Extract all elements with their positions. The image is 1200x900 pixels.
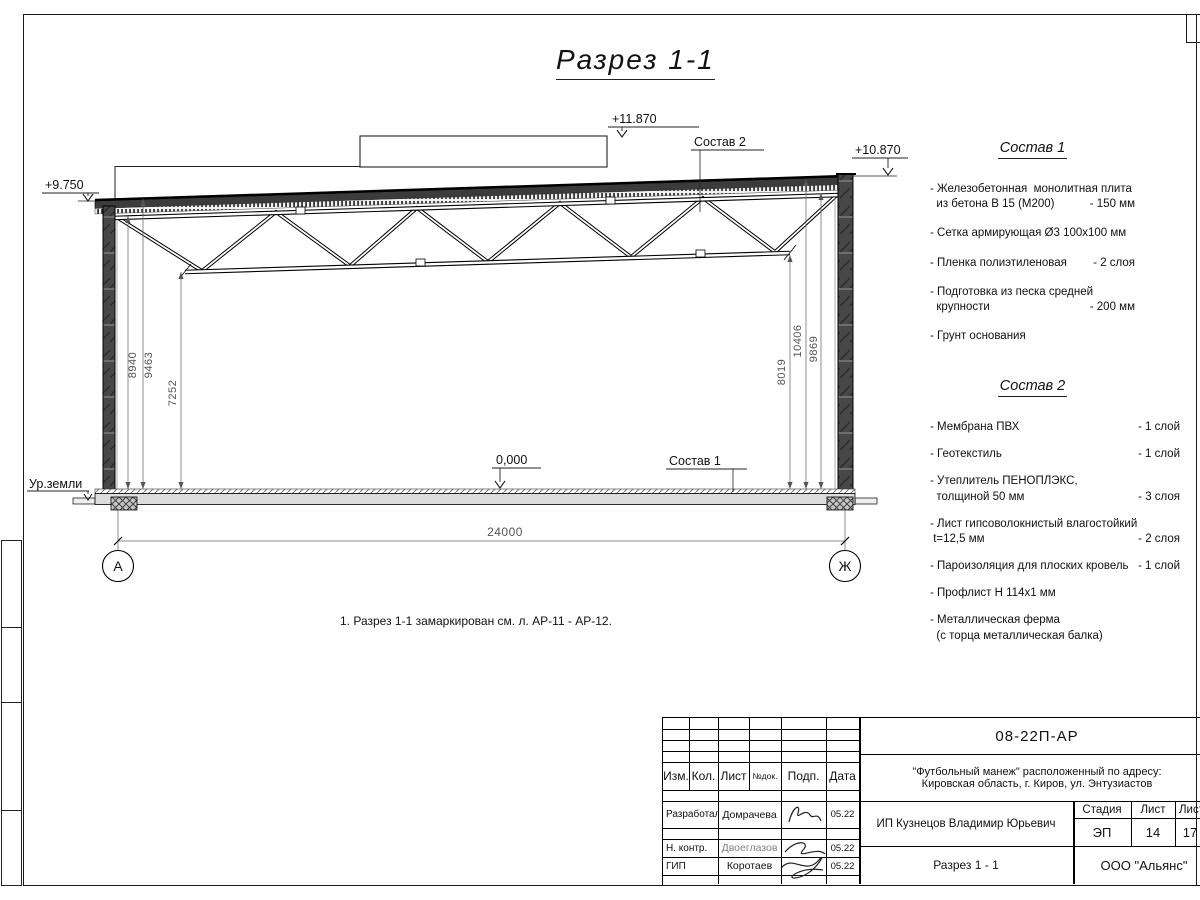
- tb-col-podp: Подп.: [781, 762, 826, 790]
- list-item: - Лист гипсоволокнистый влагостойкий t=1…: [930, 517, 1180, 547]
- tb-name-ncontrol: Двоеглазов: [718, 839, 781, 857]
- list-item: - Грунт основания: [930, 329, 1135, 344]
- binding-box: [1, 540, 22, 628]
- tb-sheet-label: Лист: [1131, 801, 1175, 818]
- corner-stamp-box: [1186, 14, 1200, 43]
- dim-9869: 9869: [808, 336, 820, 362]
- list-item: - Пленка полиэтиленовая - 2 слоя: [930, 256, 1135, 271]
- tb-client: ИП Кузнецов Владимир Юрьевич: [859, 801, 1073, 846]
- svg-text:Состав 2: Состав 2: [694, 135, 746, 149]
- list-item: - Геотекстиль - 1 слой: [930, 447, 1180, 462]
- tb-date-developer: 05.22: [826, 801, 859, 828]
- elevation-11870: +11.870: [608, 112, 699, 137]
- svg-text:Ур.земли: Ур.земли: [29, 477, 82, 491]
- tb-sheets-value: 17: [1175, 818, 1200, 846]
- elevation-10870: +10.870: [852, 143, 908, 176]
- tb-role-gip: ГИП: [663, 857, 718, 875]
- tb-col-ndok: №док.: [749, 762, 781, 790]
- tb-name-developer: Домрачева: [718, 801, 781, 828]
- drawing-note: 1. Разрез 1-1 замаркирован см. л. АР-11 …: [340, 614, 612, 628]
- sostav2-items: - Мембрана ПВХ - 1 слой - Геотекстиль - …: [930, 420, 1180, 644]
- leader-sostav1: Состав 1: [666, 454, 747, 492]
- tb-sheet-value: 14: [1131, 818, 1175, 846]
- walls: [103, 174, 856, 497]
- drawing-sheet: Разрез 1-1 1. Разрез 1-1 замаркирован см…: [0, 0, 1200, 900]
- dim-10406: 10406: [792, 324, 804, 357]
- tb-stage-label: Стадия: [1073, 801, 1131, 818]
- sostav1-panel: Состав 1 - Железобетонная монолитная пли…: [930, 140, 1135, 344]
- dim-8019: 8019: [776, 359, 788, 385]
- binding-box: [1, 702, 22, 811]
- sostav2-heading: Состав 2: [930, 378, 1135, 394]
- list-item: - Сетка армирующая Ø3 100x100 мм: [930, 226, 1135, 241]
- dim-9463: 9463: [143, 352, 155, 378]
- svg-text:+11.870: +11.870: [612, 112, 657, 126]
- tb-company: ООО "Альянс": [1073, 846, 1200, 884]
- list-item: - Профлист Н 114x1 мм: [930, 586, 1180, 601]
- elevation-9750: +9.750: [42, 178, 99, 201]
- binding-box: [1, 627, 22, 703]
- tb-stage-value: ЭП: [1073, 818, 1131, 846]
- tb-project-line2: Кировская область, г. Киров, ул. Энтузиа…: [859, 778, 1200, 794]
- tb-role-developer: Разработал: [663, 801, 718, 828]
- list-item: - Металлическая ферма (с торца металличе…: [930, 613, 1180, 643]
- dim-7252: 7252: [167, 380, 179, 406]
- sostav1-items: - Железобетонная монолитная плита из бет…: [930, 182, 1135, 344]
- binding-box: [1, 810, 22, 886]
- tb-sheet-title: Разрез 1 - 1: [859, 846, 1073, 884]
- section-drawing: 8940 9463 7252 8019 10406 9869 24000: [0, 0, 920, 660]
- page-title: Разрез 1-1: [556, 44, 715, 80]
- tb-col-izm: Изм.: [663, 762, 689, 790]
- signature-gip: [775, 836, 831, 884]
- tb-doc-number: 08-22П-АР: [859, 718, 1200, 754]
- axis-zh: Ж: [839, 558, 852, 574]
- title-block: Изм. Кол. Лист №док. Подп. Дата Разработ…: [662, 717, 1200, 886]
- list-item: - Пароизоляция для плоских кровель - 1 с…: [930, 559, 1180, 574]
- axis-markers: А Ж: [103, 551, 861, 582]
- tb-project-line1: "Футбольный манеж" расположенный по адре…: [859, 754, 1200, 778]
- list-item: - Утеплитель ПЕНОПЛЭКС, толщиной 50 мм -…: [930, 474, 1180, 504]
- tb-col-data: Дата: [826, 762, 859, 790]
- tb-col-kol: Кол.: [689, 762, 718, 790]
- list-item: - Мембрана ПВХ - 1 слой: [930, 420, 1180, 435]
- tb-sheets-label: Листов: [1175, 801, 1200, 818]
- svg-text:+9.750: +9.750: [45, 178, 84, 192]
- span-dimension: 24000: [114, 510, 849, 551]
- ground-level-label: Ур.земли: [27, 477, 92, 500]
- tb-col-list: Лист: [718, 762, 749, 790]
- axis-a: А: [113, 558, 123, 574]
- tb-name-gip: Коротаев: [718, 857, 781, 875]
- svg-text:0,000: 0,000: [496, 453, 527, 467]
- sostav2-panel: Состав 2 - Мембрана ПВХ - 1 слой - Геоте…: [930, 378, 1180, 644]
- right-dimensions: 8019 10406 9869: [776, 179, 824, 489]
- elevation-0000: 0,000: [492, 453, 541, 488]
- signature-developer: [781, 801, 826, 828]
- tb-role-ncontrol: Н. контр.: [663, 839, 718, 857]
- svg-text:+10.870: +10.870: [855, 143, 901, 157]
- dim-24000: 24000: [487, 525, 523, 539]
- dim-8940: 8940: [127, 352, 139, 378]
- list-item: - Подготовка из песка средней крупности …: [930, 285, 1135, 315]
- floor-slab: [73, 489, 877, 510]
- sostav1-heading: Состав 1: [930, 140, 1135, 156]
- svg-text:Состав 1: Состав 1: [669, 454, 721, 468]
- list-item: - Железобетонная монолитная плита из бет…: [930, 182, 1135, 212]
